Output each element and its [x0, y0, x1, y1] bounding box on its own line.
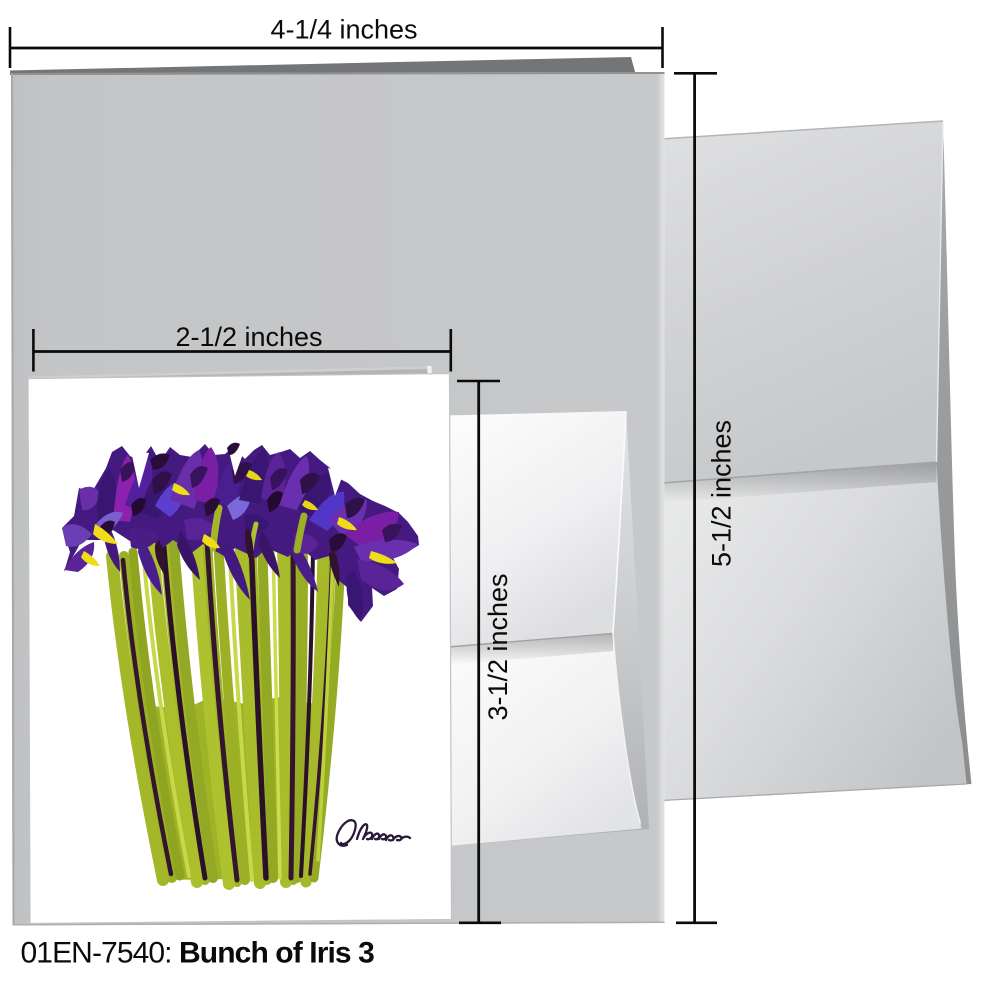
svg-text:01EN-7540: Bunch of Iris 3: 01EN-7540: Bunch of Iris 3 [21, 937, 375, 970]
svg-text:2-1/2 inches: 2-1/2 inches [175, 322, 322, 352]
svg-text:5-1/2 inches: 5-1/2 inches [707, 420, 737, 567]
svg-text:4-1/4 inches: 4-1/4 inches [270, 15, 417, 45]
svg-text:3-1/2 inches: 3-1/2 inches [483, 573, 513, 720]
